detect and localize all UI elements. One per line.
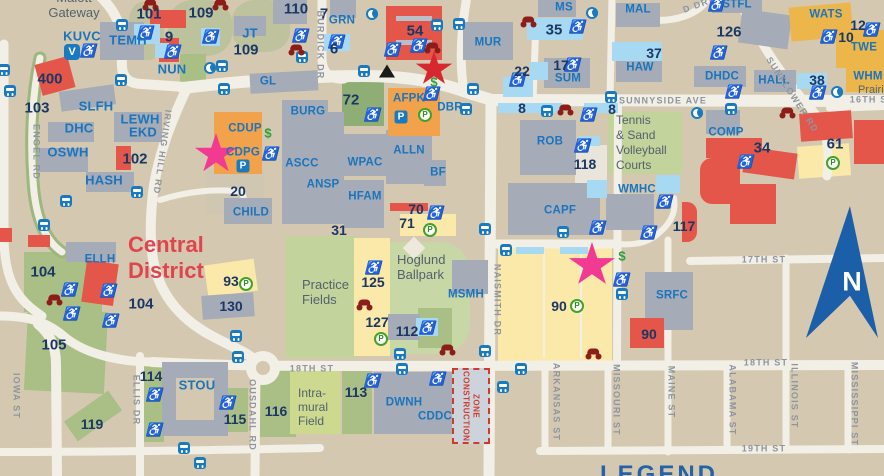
- construction-label-line1: CONSTRUCTION: [462, 371, 471, 441]
- label-lot-8b: 8: [608, 102, 616, 116]
- building-61-east: [854, 120, 884, 164]
- label-lot-400: 400: [37, 72, 62, 87]
- bus-stop-icon: [500, 244, 512, 256]
- label-gl: GL: [260, 76, 276, 88]
- pay-parking-icon: $: [264, 126, 271, 141]
- legend-title: LEGEND: [600, 461, 718, 476]
- label-road-burdick: BURDICK DR: [316, 11, 325, 80]
- label-road-alabama: ALABAMA ST: [728, 364, 737, 435]
- accessibility-icon: ♿: [164, 44, 180, 60]
- label-lot-71: 71: [399, 216, 415, 230]
- label-lot-109b: 109: [233, 43, 258, 58]
- label-lot-22: 22: [514, 64, 530, 78]
- label-lot-90a: 90: [551, 299, 567, 313]
- motorcycle-parking-icon: [440, 345, 457, 356]
- motorcycle-parking-icon: [357, 300, 374, 311]
- accessibility-icon: ♿: [725, 84, 741, 100]
- label-lot-127: 127: [365, 315, 388, 329]
- label-child: CHILD: [233, 207, 269, 219]
- label-lot-93: 93: [223, 274, 239, 288]
- label-haw: HAW: [626, 62, 653, 74]
- label-afpk: AFPK: [393, 93, 425, 105]
- label-alln: ALLN: [393, 145, 424, 157]
- pay-parking-icon: $: [430, 75, 437, 90]
- label-bf: BF: [430, 167, 446, 179]
- label-hoglund-ballpark: Hoglund Ballpark: [397, 252, 445, 282]
- permit-parking-icon: P: [374, 332, 388, 346]
- hoglund-line2: Ballpark: [397, 267, 445, 282]
- label-stfl: STFL: [722, 0, 752, 11]
- permit-letter: P: [572, 301, 582, 311]
- accessible-zone-17: [530, 62, 548, 80]
- label-wmhc: WMHC: [618, 184, 656, 196]
- bus-stop-icon: [4, 85, 16, 97]
- label-jt: JT: [242, 27, 258, 40]
- compass-n-label: N: [842, 269, 862, 296]
- label-road-illinois: ILLINOIS ST: [790, 363, 799, 428]
- label-nun: NUN: [158, 63, 187, 76]
- label-ansp: ANSP: [307, 179, 340, 191]
- district-line2: District: [128, 258, 204, 284]
- label-lot-72: 72: [343, 93, 360, 108]
- bus-stop-icon: [60, 195, 72, 207]
- central-district-label: Central District: [128, 232, 204, 284]
- label-lot-117: 117: [673, 219, 696, 233]
- bus-stop-icon: [115, 74, 127, 86]
- label-lot-109a: 109: [188, 6, 213, 21]
- label-lot-31: 31: [331, 223, 347, 237]
- crescent-icon: [691, 107, 703, 119]
- motorcycle-parking-icon: [586, 349, 603, 360]
- label-lot-54: 54: [407, 24, 424, 39]
- accessibility-icon: ♿: [820, 29, 836, 45]
- label-lot-115: 115: [224, 412, 247, 426]
- label-lot-70: 70: [408, 202, 424, 216]
- road-west-connector: [0, 316, 152, 362]
- accessibility-icon: ♿: [146, 387, 162, 403]
- bus-stop-icon: [541, 105, 553, 117]
- label-road-17th: 17TH ST: [742, 256, 786, 265]
- label-twe: TWE: [851, 42, 877, 54]
- label-ascc: ASCC: [285, 158, 318, 170]
- label-lot-90b: 90: [641, 327, 657, 341]
- accessibility-icon: ♿: [737, 154, 753, 170]
- motorcycle-parking-icon: [521, 17, 538, 28]
- accessible-zone-schwegler-2: [560, 247, 588, 254]
- label-lot-104b: 104: [128, 297, 153, 312]
- label-whm: WHM: [853, 71, 882, 83]
- intramural-line2: mural: [298, 400, 328, 414]
- label-rob: ROB: [537, 136, 563, 148]
- label-road-mississippi: MISSISSIPPI ST: [850, 362, 859, 446]
- bus-stop-icon: [194, 457, 206, 469]
- label-lot-113: 113: [345, 385, 368, 399]
- label-hfam: HFAM: [348, 191, 381, 203]
- motorcycle-parking-icon: [780, 108, 797, 119]
- label-lot-101: 101: [136, 7, 161, 22]
- building-wpac: [344, 134, 388, 176]
- label-lot-37: 37: [646, 46, 662, 60]
- label-lot-38: 38: [809, 73, 825, 87]
- tennis-line2: & Sand: [616, 128, 667, 143]
- label-lot-102: 102: [122, 152, 147, 167]
- crescent-icon: [831, 86, 843, 98]
- tennis-line3: Volleyball: [616, 143, 667, 158]
- road-19th-east: [540, 449, 884, 451]
- bus-stop-icon: [616, 288, 628, 300]
- accessibility-icon: ♿: [63, 306, 79, 322]
- label-lot-61: 61: [827, 137, 844, 152]
- label-ms: MS: [555, 2, 573, 14]
- crescent-icon: [366, 8, 378, 20]
- label-lot-116: 116: [265, 404, 288, 418]
- label-dhc: DHC: [65, 122, 94, 135]
- accessibility-icon: ♿: [219, 395, 235, 411]
- label-road-18th-a: 18TH ST: [290, 365, 334, 374]
- accessibility-icon: ♿: [364, 107, 380, 123]
- accessibility-icon: ♿: [574, 138, 590, 154]
- label-prairie: Prairie: [858, 84, 884, 96]
- label-lot-104a: 104: [30, 265, 55, 280]
- label-ellh: ELLH: [85, 254, 116, 266]
- accessibility-icon: ♿: [429, 371, 445, 387]
- intramural-line1: Intra-: [298, 386, 328, 400]
- motorcycle-parking-icon: [289, 45, 306, 56]
- label-intramural-field: Intra- mural Field: [298, 386, 328, 428]
- label-cdup: CDUP: [228, 123, 261, 135]
- label-road-missouri: MISSOURI ST: [612, 364, 621, 436]
- van-shuttle-icon: V: [64, 44, 80, 60]
- label-ekd: EKD: [129, 126, 157, 139]
- road-19th-west: [0, 448, 320, 452]
- bus-stop-icon: [216, 60, 228, 72]
- label-wpac: WPAC: [347, 157, 382, 169]
- label-lot-110: 110: [284, 2, 308, 17]
- accessibility-icon: ♿: [102, 313, 118, 329]
- building-126: [738, 9, 792, 50]
- accessibility-icon: ♿: [202, 29, 218, 45]
- motorcycle-parking-icon: [213, 0, 230, 11]
- accessibility-icon: ♿: [80, 43, 96, 59]
- label-lot-103: 103: [24, 101, 49, 116]
- label-road-arkansas: ARKANSAS ST: [552, 363, 561, 441]
- label-malott-gateway: Malott Gateway: [36, 0, 112, 20]
- triangle-marker: [379, 65, 395, 78]
- motorcycle-parking-icon: [47, 295, 64, 306]
- permit-parking-icon: P: [239, 277, 253, 291]
- bus-stop-icon: [0, 64, 10, 76]
- bus-stop-icon: [394, 348, 406, 360]
- construction-zone: CONSTRUCTION ZONE: [452, 368, 490, 444]
- bus-stop-icon: [431, 19, 443, 31]
- label-road-iowa: IOWA ST: [12, 373, 21, 419]
- label-lot-9: 9: [165, 30, 173, 45]
- building-34-d: [730, 184, 776, 224]
- intramural-line3: Field: [298, 414, 328, 428]
- bus-stop-icon: [218, 83, 230, 95]
- hoglund-line1: Hoglund: [397, 252, 445, 267]
- label-capf: CAPF: [544, 205, 576, 217]
- accessible-zone-wmhc-left: [587, 180, 607, 198]
- label-dhdc: DHDC: [705, 71, 739, 83]
- label-cddc: CDDC: [418, 411, 452, 423]
- label-cdpg: CDPG: [226, 147, 260, 159]
- label-lot-6: 6: [330, 42, 338, 57]
- label-lot-20: 20: [230, 184, 246, 198]
- accessibility-icon: ♿: [656, 194, 672, 210]
- label-lot-34: 34: [754, 141, 771, 156]
- bus-stop-icon: [479, 345, 491, 357]
- permit-letter: P: [425, 225, 435, 235]
- label-msmh: MSMH: [448, 289, 484, 301]
- practice-line1: Practice: [302, 277, 349, 292]
- crescent-icon: [204, 62, 216, 74]
- label-oswh: OSWH: [47, 146, 88, 159]
- permit-letter: P: [828, 158, 838, 168]
- crescent-icon: [586, 7, 598, 19]
- bus-stop-icon: [557, 226, 569, 238]
- label-burg: BURG: [291, 106, 326, 118]
- building-edge-west-2: [28, 235, 50, 247]
- label-lot-105: 105: [41, 338, 66, 353]
- accessibility-icon: ♿: [580, 107, 596, 123]
- bus-stop-icon: [38, 219, 50, 231]
- label-lot-126: 126: [716, 25, 741, 40]
- accessibility-icon: ♿: [569, 19, 585, 35]
- accessibility-icon: ♿: [384, 42, 400, 58]
- label-kuvc: KUVC: [63, 30, 101, 43]
- label-lot-10: 10: [838, 30, 854, 44]
- label-lot-118: 118: [574, 157, 597, 171]
- label-comp: COMP: [708, 127, 743, 139]
- bus-stop-icon: [178, 442, 190, 454]
- accessibility-icon: ♿: [419, 320, 435, 336]
- bus-stop-icon: [453, 18, 465, 30]
- label-lot-35: 35: [546, 23, 563, 38]
- label-sum: SUM: [555, 73, 581, 85]
- permit-letter: P: [376, 334, 386, 344]
- pay-parking-icon: $: [618, 249, 625, 264]
- gateway-line: Gateway: [36, 5, 112, 20]
- label-lot-130: 130: [219, 299, 242, 313]
- tennis-line4: Courts: [616, 158, 667, 173]
- label-mur: MUR: [475, 37, 502, 49]
- bus-stop-icon: [467, 83, 479, 95]
- label-lot-119: 119: [81, 417, 104, 431]
- accessibility-icon: ♿: [262, 146, 278, 162]
- building-54-court-1: [396, 16, 432, 21]
- parking-garage-icon: P: [395, 111, 408, 124]
- label-dbr: DBR: [437, 102, 463, 114]
- bus-stop-icon: [230, 330, 242, 342]
- label-road-ellis: ELLIS DR: [132, 375, 141, 426]
- campus-map[interactable]: CONSTRUCTION ZONE N ♿ ♿ ♿ ♿ ♿ ♿ ♿ ♿ ♿ ♿ …: [0, 0, 884, 476]
- bus-stop-icon: [396, 363, 408, 375]
- label-lot-125: 125: [361, 275, 384, 289]
- label-lot-17: 17: [553, 58, 569, 72]
- bus-stop-icon: [515, 363, 527, 375]
- permit-parking-icon: P: [826, 156, 840, 170]
- building-edge-west-1: [0, 228, 12, 242]
- accessibility-icon: ♿: [710, 45, 726, 61]
- accessibility-icon: ♿: [427, 205, 443, 221]
- label-slfh: SLFH: [79, 100, 114, 113]
- parking-garage-icon: P: [237, 160, 250, 173]
- roundabout-island: [256, 361, 270, 375]
- bus-stop-icon: [116, 19, 128, 31]
- permit-letter: P: [420, 110, 430, 120]
- permit-parking-icon: P: [570, 299, 584, 313]
- label-wats: WATS: [809, 9, 842, 21]
- accessibility-icon: ♿: [292, 28, 308, 44]
- practice-line2: Fields: [302, 292, 349, 307]
- label-srfc: SRFC: [656, 290, 688, 302]
- road-16th: [830, 106, 884, 108]
- label-road-maine: MAINE ST: [667, 366, 676, 419]
- bus-stop-icon: [479, 223, 491, 235]
- label-stou: STOU: [179, 379, 216, 392]
- tennis-line1: Tennis: [616, 113, 667, 128]
- label-lot-8a: 8: [518, 101, 526, 115]
- permit-parking-icon: P: [418, 108, 432, 122]
- accessibility-icon: ♿: [146, 422, 162, 438]
- accessibility-icon: ♿: [613, 272, 629, 288]
- label-lot-114: 114: [140, 369, 163, 383]
- label-dwnh: DWNH: [386, 397, 423, 409]
- accessibility-icon: ♿: [640, 225, 656, 241]
- district-line1: Central: [128, 232, 204, 258]
- label-tennis-courts: Tennis & Sand Volleyball Courts: [616, 113, 667, 173]
- label-road-sunnyside: SUNNYSIDE AVE: [619, 97, 707, 106]
- accessibility-icon: ♿: [589, 220, 605, 236]
- label-road-19th: 19TH ST: [742, 445, 786, 454]
- permit-letter: P: [241, 279, 251, 289]
- bus-stop-icon: [497, 381, 509, 393]
- bus-stop-icon: [131, 186, 143, 198]
- motorcycle-parking-icon: [425, 43, 442, 54]
- label-practice-fields: Practice Fields: [302, 277, 349, 307]
- label-hash: HASH: [85, 174, 123, 187]
- label-mal: MAL: [625, 4, 651, 16]
- bus-stop-icon: [358, 65, 370, 77]
- bus-stop-icon: [232, 351, 244, 363]
- label-grn: GRN: [329, 15, 355, 27]
- building-hfam: [344, 180, 384, 228]
- permit-parking-icon: P: [423, 223, 437, 237]
- label-lot-112: 112: [396, 324, 419, 338]
- accessible-zone-wmhc-top: [656, 175, 680, 193]
- construction-label-line2: ZONE: [472, 394, 481, 418]
- bus-stop-icon: [725, 103, 737, 115]
- label-road-naismith: NAISMITH DR: [493, 264, 502, 336]
- label-road-ousdahl: OUSDAHL RD: [248, 379, 257, 451]
- motorcycle-parking-icon: [558, 105, 575, 116]
- label-road-18th-b: 18TH ST: [744, 359, 788, 368]
- accessibility-icon: ♿: [100, 283, 116, 299]
- accessible-zone-schwegler: [516, 247, 544, 254]
- label-road-engel: ENGEL RD: [32, 124, 41, 180]
- label-temh: TEMH: [109, 34, 147, 47]
- label-road-16th: 16TH ST: [850, 96, 884, 105]
